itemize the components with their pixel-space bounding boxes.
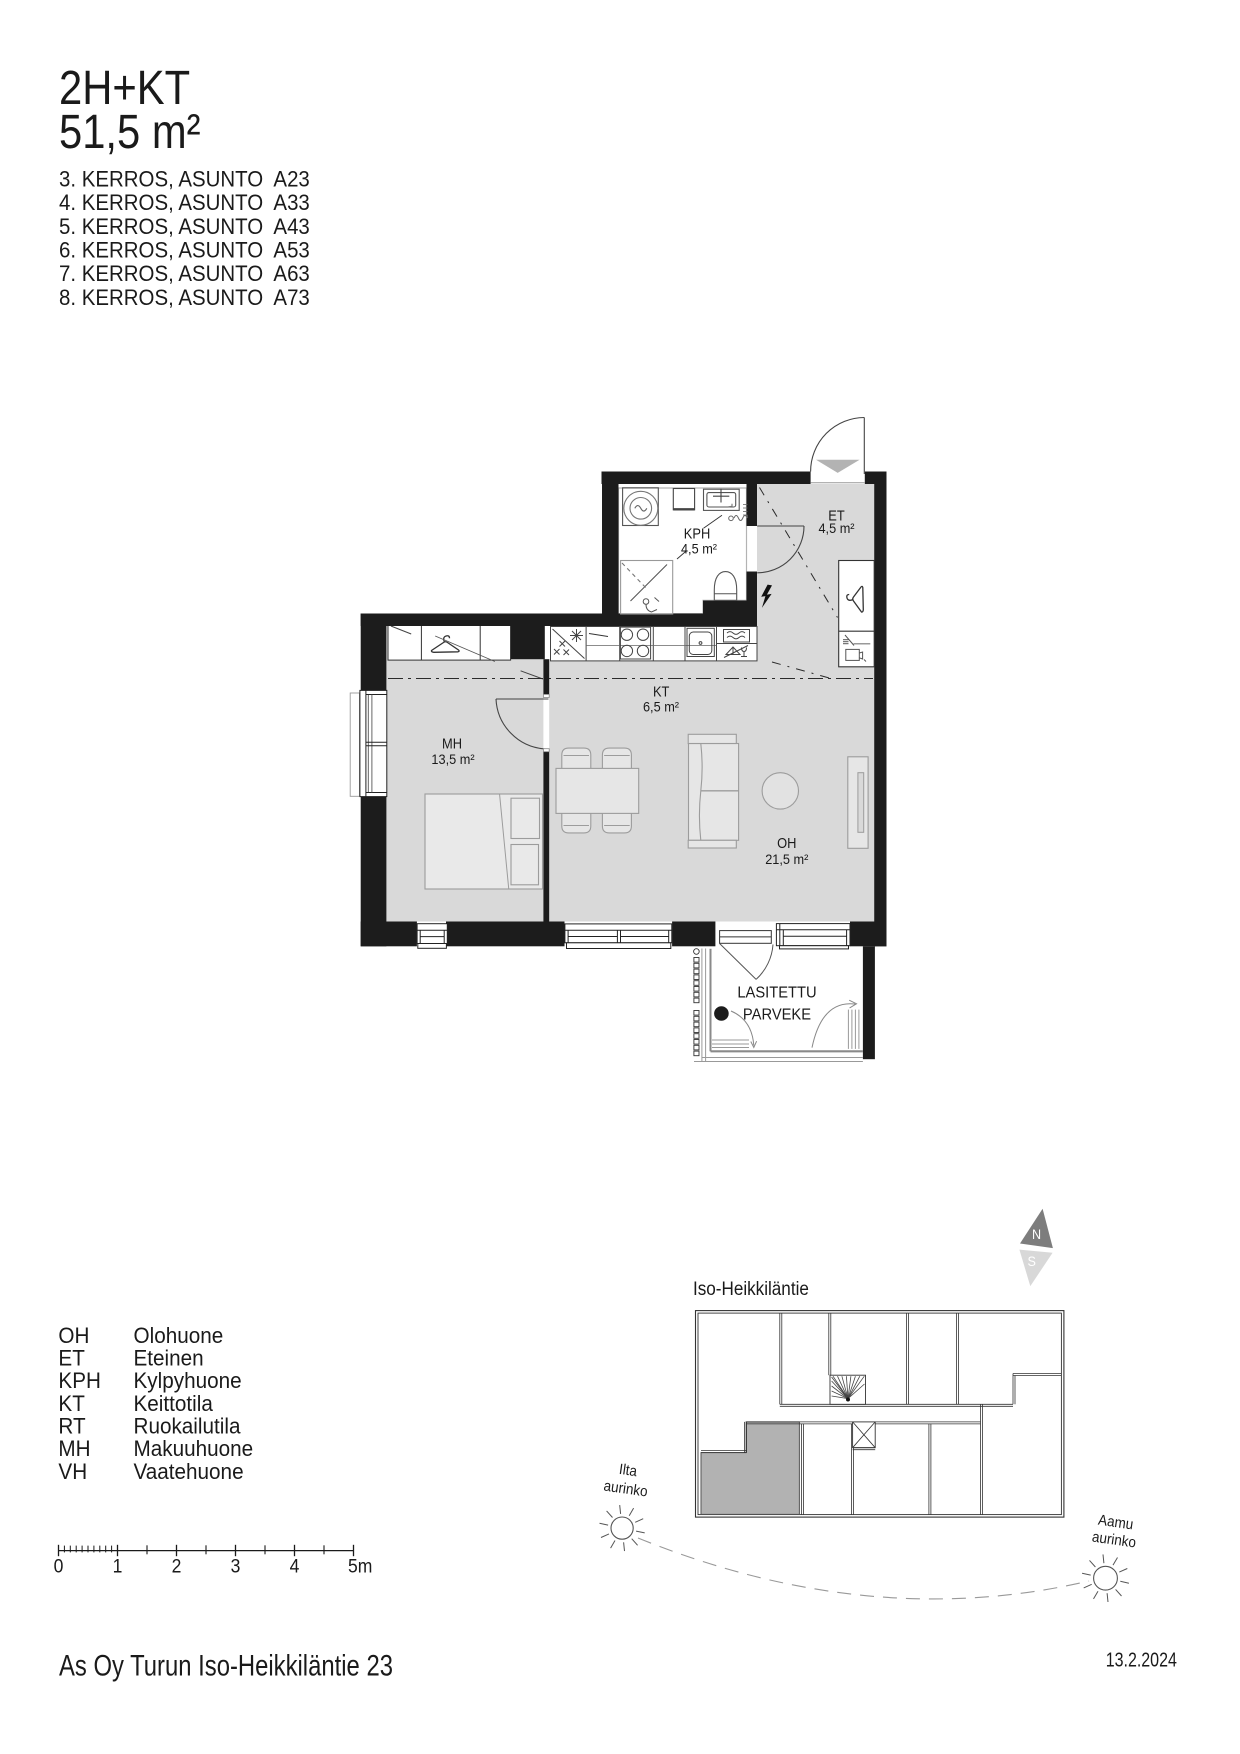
svg-text:4,5 m²: 4,5 m² <box>681 541 718 557</box>
svg-text:N: N <box>1032 1226 1041 1242</box>
svg-text:MH: MH <box>442 736 462 752</box>
svg-text:VH: VH <box>58 1458 87 1484</box>
svg-text:LASITETTU: LASITETTU <box>737 984 816 1002</box>
svg-text:5m: 5m <box>348 1555 372 1577</box>
svg-text:4,5 m²: 4,5 m² <box>818 520 855 536</box>
svg-text:4: 4 <box>290 1555 300 1577</box>
svg-text:7. KERROS, ASUNTO A63: 7. KERROS, ASUNTO A63 <box>59 262 310 287</box>
svg-text:KT: KT <box>653 684 669 700</box>
svg-text:51,5 m²: 51,5 m² <box>59 104 201 158</box>
svg-text:OH: OH <box>777 836 796 852</box>
svg-text:Iso-Heikkiläntie: Iso-Heikkiläntie <box>693 1278 809 1299</box>
svg-text:Ilta: Ilta <box>618 1461 638 1480</box>
svg-text:3. KERROS, ASUNTO A23: 3. KERROS, ASUNTO A23 <box>59 167 310 192</box>
svg-text:2: 2 <box>172 1555 182 1577</box>
svg-text:13.2.2024: 13.2.2024 <box>1106 1649 1177 1671</box>
svg-text:aurinko: aurinko <box>603 1478 649 1501</box>
svg-text:21,5 m²: 21,5 m² <box>765 852 809 868</box>
svg-text:1: 1 <box>113 1555 123 1577</box>
svg-text:13,5 m²: 13,5 m² <box>431 751 475 767</box>
svg-text:3: 3 <box>231 1555 241 1577</box>
svg-text:6. KERROS, ASUNTO A53: 6. KERROS, ASUNTO A53 <box>59 238 310 263</box>
svg-text:Vaatehuone: Vaatehuone <box>134 1458 244 1484</box>
svg-text:PARVEKE: PARVEKE <box>743 1006 811 1024</box>
svg-text:5. KERROS, ASUNTO A43: 5. KERROS, ASUNTO A43 <box>59 214 310 239</box>
svg-text:S: S <box>1028 1253 1037 1269</box>
svg-text:4. KERROS, ASUNTO A33: 4. KERROS, ASUNTO A33 <box>59 190 310 215</box>
svg-text:6,5 m²: 6,5 m² <box>643 699 680 715</box>
svg-text:8. KERROS, ASUNTO A73: 8. KERROS, ASUNTO A73 <box>59 285 310 310</box>
svg-text:As Oy Turun Iso-Heikkiläntie 2: As Oy Turun Iso-Heikkiläntie 23 <box>59 1648 393 1682</box>
svg-text:0: 0 <box>54 1555 64 1577</box>
svg-text:KPH: KPH <box>684 526 710 542</box>
